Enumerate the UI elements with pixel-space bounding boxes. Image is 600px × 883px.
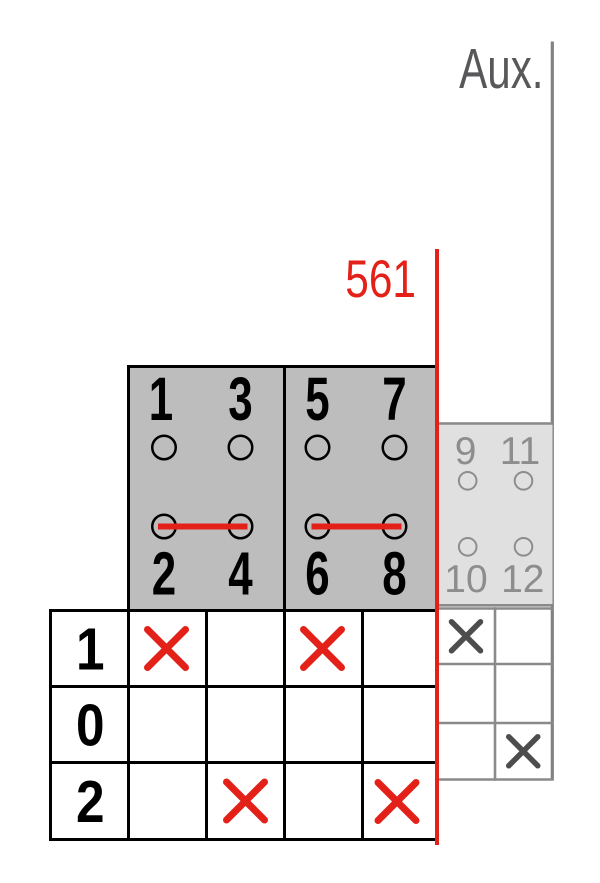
svg-text:561: 561 [345, 251, 416, 310]
svg-text:10: 10 [444, 558, 487, 601]
svg-text:Aux.: Aux. [459, 37, 543, 101]
svg-text:12: 12 [501, 558, 544, 601]
svg-text:1: 1 [76, 616, 105, 682]
svg-text:0: 0 [76, 692, 105, 758]
svg-text:1: 1 [149, 366, 173, 434]
svg-text:9: 9 [455, 430, 477, 473]
svg-text:6: 6 [305, 541, 329, 609]
svg-text:8: 8 [382, 541, 406, 609]
svg-text:2: 2 [152, 541, 176, 609]
svg-text:3: 3 [228, 366, 252, 434]
svg-text:7: 7 [382, 366, 406, 434]
svg-text:2: 2 [76, 769, 105, 835]
svg-text:4: 4 [228, 541, 253, 609]
svg-text:5: 5 [305, 366, 329, 434]
svg-text:11: 11 [500, 430, 541, 473]
